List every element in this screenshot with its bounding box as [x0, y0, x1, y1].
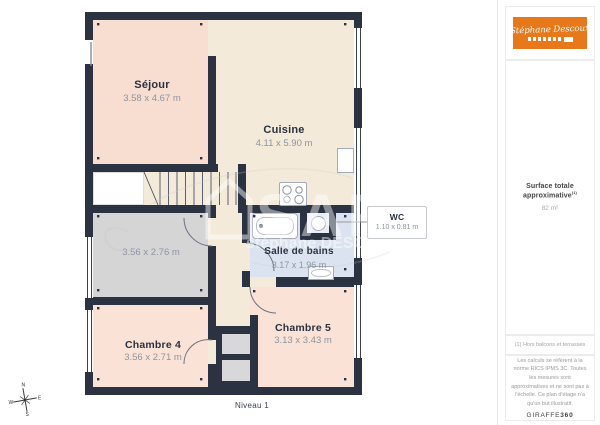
label-chambre-5: Chambre 5 3.13 x 3.43 m	[274, 321, 332, 348]
surface-title-text: Surface totale approximative	[523, 183, 574, 199]
wc-callout: WC 1.10 x 0.81 m	[367, 206, 427, 239]
footnote-card: (1) Hors balcons et terrasses	[505, 335, 595, 355]
brand-giraffe360: GIRAFFE360	[526, 412, 573, 419]
agency-logo-card: Stéphane Descoux	[505, 6, 595, 60]
brand-name: GIRAFFE	[526, 412, 560, 419]
label-unnamed-room: 3.56 x 2.76 m	[122, 247, 180, 260]
wall	[85, 12, 362, 20]
logo-banner-badge	[564, 37, 573, 42]
window	[85, 237, 93, 298]
surface-summary-card: Surface totale approximative(1) 82 m²	[505, 60, 595, 335]
window	[85, 310, 93, 372]
level-label: Niveau 1	[235, 401, 269, 410]
label-salle-de-bains: Salle de bains 3.17 x 1.96 m	[264, 245, 334, 271]
wc-wall	[300, 233, 336, 240]
wall	[85, 12, 93, 40]
agency-logo-banner	[528, 37, 573, 42]
surface-title-sup: (1)	[572, 190, 577, 195]
logo-banner-text-strip	[528, 37, 562, 41]
compass: N E S W	[9, 383, 43, 419]
wall	[208, 56, 216, 164]
wall	[85, 297, 216, 305]
toilet-fixture	[311, 216, 326, 231]
brand-bold: 360	[560, 412, 573, 419]
surface-total-title: Surface totale approximative(1)	[506, 183, 594, 199]
label-cuisine: Cuisine 4.11 x 5.90 m	[256, 123, 313, 151]
footnote-text: (1) Hors balcons et terrasses	[515, 342, 586, 348]
wall	[85, 164, 218, 172]
wall	[208, 246, 216, 297]
wall	[85, 387, 362, 395]
compass-s: S	[26, 412, 30, 418]
label-sejour: Séjour 3.58 x 4.67 m	[123, 78, 181, 106]
wall	[208, 297, 216, 340]
compass-n: N	[22, 383, 26, 389]
agency-logo: Stéphane Descoux	[513, 17, 587, 49]
surface-total-value: 82 m²	[542, 205, 559, 212]
wall	[85, 372, 93, 395]
fridge-fixture	[337, 148, 354, 173]
compass-w: W	[9, 400, 14, 406]
legal-card: Les calculs se réfèrent à la norme RICS …	[505, 355, 595, 421]
wall	[354, 88, 362, 128]
legal-text: Les calculs se réfèrent à la norme RICS …	[511, 357, 589, 408]
sidebar-divider	[497, 0, 498, 425]
wall	[85, 205, 216, 213]
window	[354, 285, 362, 358]
stairwell-void	[93, 172, 144, 205]
wall	[250, 315, 258, 387]
wall	[208, 205, 216, 218]
bathtub-fixture	[252, 213, 298, 239]
closet-upper	[222, 334, 252, 354]
wall	[354, 12, 362, 28]
window	[354, 128, 362, 258]
window	[354, 28, 362, 88]
cooktop-fixture	[279, 182, 307, 206]
wall	[242, 205, 250, 243]
label-chambre-4: Chambre 4 3.56 x 2.71 m	[124, 338, 182, 365]
agency-logo-signature: Stéphane Descoux	[510, 23, 590, 36]
closet-lower	[222, 360, 252, 381]
wall	[354, 358, 362, 395]
wall	[208, 364, 216, 387]
wall	[242, 277, 250, 287]
compass-e: E	[38, 396, 42, 402]
